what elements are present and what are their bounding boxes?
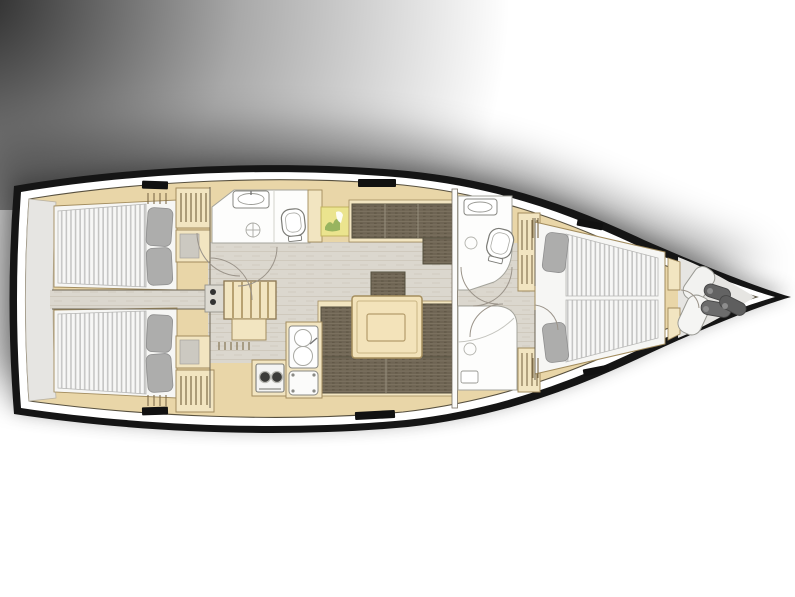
aft-head — [212, 190, 310, 243]
pillow — [542, 322, 570, 364]
dinette-sofa-right — [422, 304, 452, 360]
pillow — [146, 353, 174, 393]
bow-bulkhead — [668, 258, 680, 290]
wardrobe — [176, 370, 214, 412]
pillow — [146, 207, 174, 247]
chart-table — [321, 207, 350, 236]
double-sink — [289, 326, 318, 368]
engine-panel-knob — [210, 299, 216, 305]
pillow — [146, 314, 173, 352]
deck-hatch — [358, 179, 396, 187]
cabinet — [232, 319, 266, 340]
fridge-top — [289, 371, 318, 395]
seat-cushion — [180, 234, 199, 258]
sofa-backrest — [371, 272, 405, 296]
dinette-table — [352, 296, 422, 358]
pillow — [146, 247, 173, 285]
stove — [256, 364, 284, 392]
engine-panel-knob — [210, 289, 216, 295]
deck-hatch — [142, 181, 168, 190]
seat-cushion — [180, 340, 199, 364]
bed-mattress — [58, 204, 146, 287]
shower-seat — [461, 371, 478, 383]
engine-panel — [205, 285, 224, 312]
sofa-corner — [423, 238, 452, 264]
yacht-deck-plan: Sailing yacht interior deck layout plan,… — [0, 0, 795, 597]
main-bulkhead — [452, 189, 458, 408]
aft-corridor-floor — [50, 290, 222, 309]
shower-drain-icon — [246, 223, 260, 237]
deck-hatch — [142, 407, 168, 416]
forward-shower — [458, 306, 517, 390]
yacht-layout-canvas: Sailing yacht interior deck layout plan,… — [0, 0, 795, 597]
sofa-top — [352, 204, 452, 238]
cabinet — [308, 190, 322, 242]
bed-mattress — [58, 311, 146, 394]
pillow — [542, 232, 570, 274]
